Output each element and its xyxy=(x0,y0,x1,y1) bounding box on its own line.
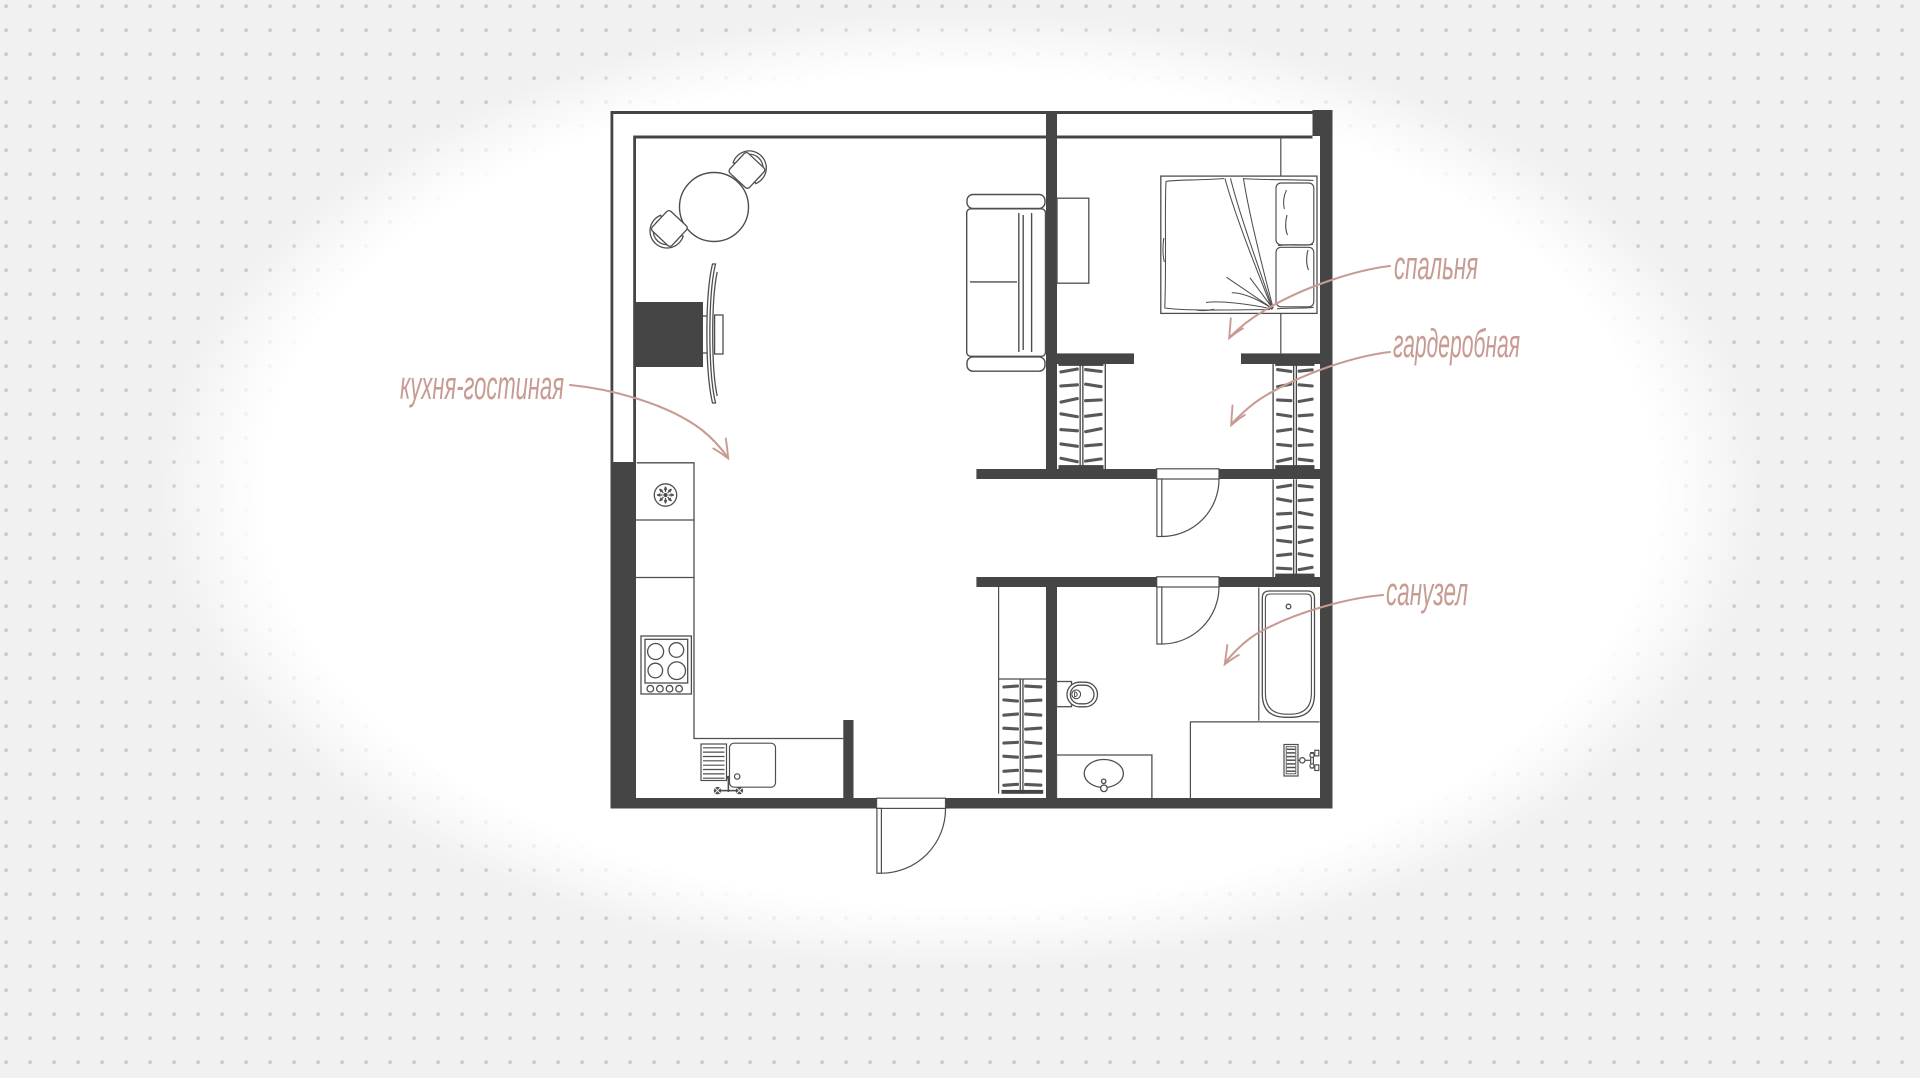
svg-text:кухня-гостиная: кухня-гостиная xyxy=(400,364,564,408)
svg-text:санузел: санузел xyxy=(1386,570,1468,614)
svg-text:спальня: спальня xyxy=(1394,244,1478,288)
svg-text:гардеробная: гардеробная xyxy=(1393,322,1520,366)
